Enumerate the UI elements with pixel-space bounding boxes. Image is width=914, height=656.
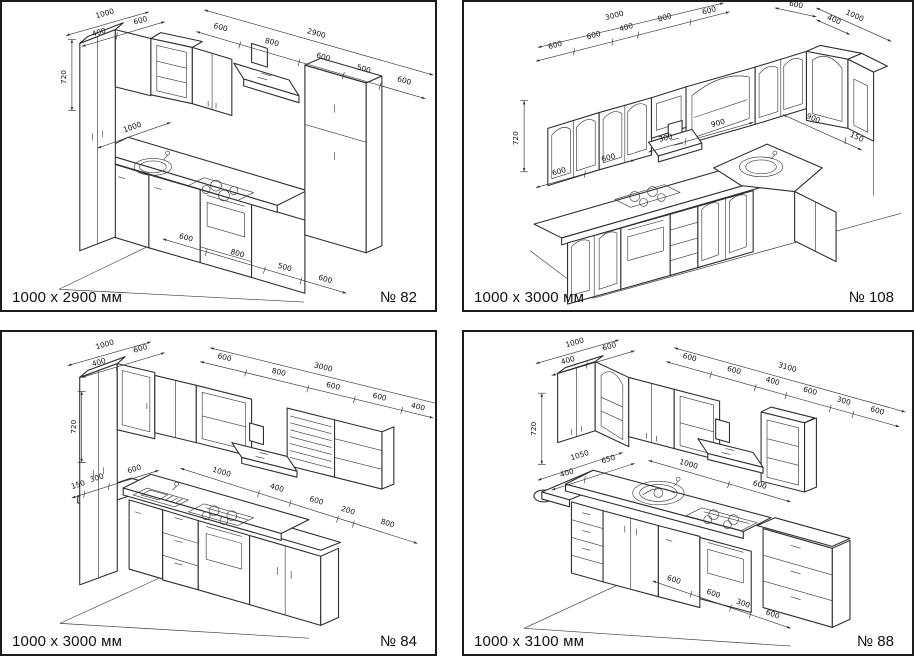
dim-label: 400 <box>559 466 575 479</box>
dim-label: 600 <box>372 391 388 403</box>
dim-label: 600 <box>325 380 341 392</box>
panel-number-label: № 108 <box>849 289 894 306</box>
dim-label: 1050 <box>569 448 590 462</box>
dim-label: 600 <box>802 385 818 398</box>
dim-label: 1000 <box>211 465 232 479</box>
dim-label: 400 <box>826 12 843 26</box>
dim-label: 3000 <box>313 360 334 373</box>
wall-units <box>548 45 888 185</box>
panel-size-label: 1000 x 3000 мм <box>12 633 122 650</box>
dim-label: 600 <box>396 74 412 87</box>
catalog-grid: 1000 400 600 720 1000 2900 600 800 600 5… <box>0 0 914 656</box>
dim-label: 1000 <box>94 6 115 20</box>
dim-label: 600 <box>869 404 885 417</box>
dim-label: 600 <box>586 29 602 41</box>
dim-label: 720 <box>511 131 520 145</box>
dim-label: 200 <box>340 504 356 517</box>
kitchen-drawing-82: 1000 400 600 720 1000 2900 600 800 600 5… <box>2 2 435 310</box>
panel-size-label: 1000 x 3100 мм <box>474 633 584 650</box>
dim-label: 1000 <box>678 457 699 471</box>
dim-label: 600 <box>317 273 333 286</box>
dim-label: 600 <box>701 4 717 16</box>
dim-label: 800 <box>271 366 287 378</box>
panel-number-label: № 88 <box>857 633 894 650</box>
dim-label: 600 <box>601 340 617 353</box>
dim-label: 3000 <box>604 9 625 23</box>
dim-label: 720 <box>69 419 78 433</box>
dim-label: 3100 <box>777 360 798 374</box>
panel-number-label: № 82 <box>380 289 417 306</box>
dim-label: 800 <box>380 517 396 530</box>
kitchen-panel-82: 1000 400 600 720 1000 2900 600 800 600 5… <box>0 0 437 312</box>
dim-label: 600 <box>126 462 142 475</box>
panel-number-label: № 84 <box>380 633 417 650</box>
dim-label: 600 <box>682 351 698 364</box>
kitchen-panel-108: 600 600 400 800 600 3000 600 1000 400 72… <box>462 0 914 312</box>
kitchen-drawing-88: 1000 400 600 720 3100 600 600 400 600 30… <box>464 332 912 654</box>
dim-label: 600 <box>788 2 804 10</box>
dim-label: 400 <box>269 481 285 494</box>
dim-label: 650 <box>600 453 616 466</box>
kitchen-panel-84: 1000 400 600 720 150 300 600 3000 600 80… <box>0 330 437 656</box>
kitchen-panel-88: 1000 400 600 720 3100 600 600 400 600 30… <box>462 330 914 656</box>
dim-label: 600 <box>132 342 148 355</box>
dim-label: 1000 <box>94 337 115 351</box>
dim-label: 1000 <box>122 120 143 135</box>
dim-label: 720 <box>529 421 538 435</box>
dim-label: 800 <box>264 36 280 49</box>
panel-size-label: 1000 x 3000 мм <box>474 289 584 306</box>
dim-label: 720 <box>59 70 68 84</box>
dim-label: 2900 <box>306 26 327 40</box>
panel-size-label: 1000 x 2900 мм <box>12 289 122 306</box>
dim-label: 600 <box>213 21 229 34</box>
dim-label: 600 <box>726 364 742 377</box>
kitchen-drawing-84: 1000 400 600 720 150 300 600 3000 600 80… <box>2 332 435 654</box>
dim-label: 600 <box>308 494 324 507</box>
dim-label: 400 <box>618 21 634 33</box>
dim-label: 1000 <box>564 335 585 349</box>
kitchen-drawing-108: 600 600 400 800 600 3000 600 1000 400 72… <box>464 2 912 310</box>
dim-label: 1000 <box>844 8 865 24</box>
dim-label: 400 <box>410 401 426 413</box>
tall-cabinet <box>305 58 382 252</box>
